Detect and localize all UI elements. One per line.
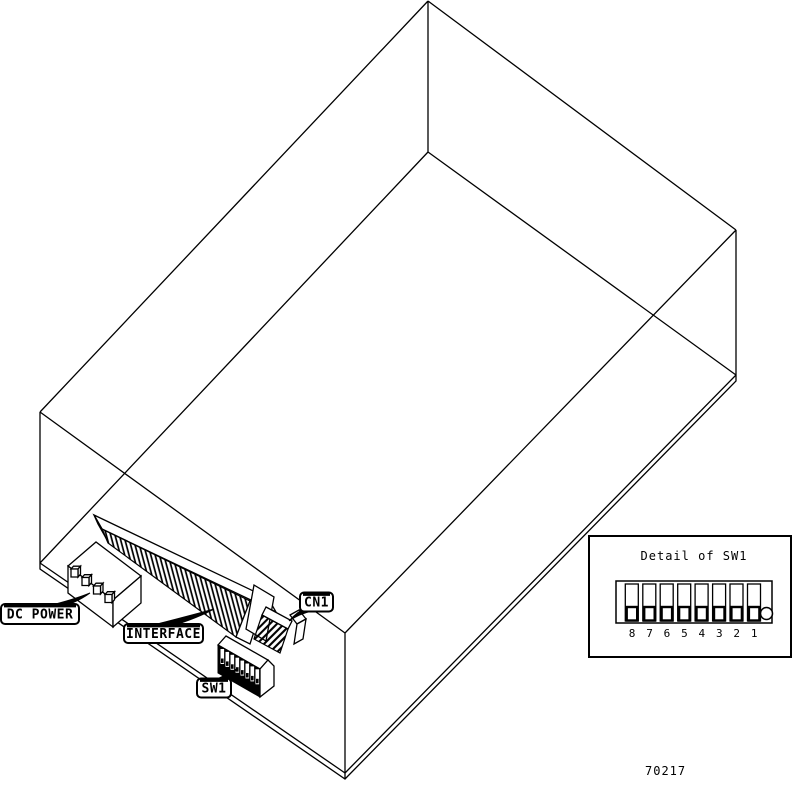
num-1: 1 (751, 627, 758, 640)
handle-2 (731, 607, 742, 621)
handle-5 (679, 607, 690, 621)
handle-4 (697, 607, 708, 621)
background (0, 0, 794, 787)
dc-power-pin-3 (94, 583, 104, 594)
dc-power-pin-4 (105, 592, 115, 603)
handle-6 (662, 607, 673, 621)
num-4: 4 (698, 627, 705, 640)
cn1-label: CN1 (304, 596, 329, 611)
handle-1 (749, 607, 760, 621)
handle-8 (627, 607, 638, 621)
dc-power-pin-2 (82, 575, 92, 586)
num-3: 3 (716, 627, 723, 640)
drive-enclosure-figure: DC POWER INTERFACE CN1 SW1 Detail of SW1 (0, 0, 794, 787)
num-5: 5 (681, 627, 688, 640)
interface-label: INTERFACE (126, 627, 201, 642)
sw1-label: SW1 (202, 682, 227, 697)
dc-power-pin-1 (71, 566, 81, 577)
diagram-page: DC POWER INTERFACE CN1 SW1 Detail of SW1 (0, 0, 794, 787)
num-6: 6 (664, 627, 671, 640)
num-7: 7 (646, 627, 653, 640)
inset-title: Detail of SW1 (641, 549, 748, 563)
sw1-detail-inset: Detail of SW1 8 7 6 5 4 (589, 536, 791, 657)
inset-index-dot (761, 608, 773, 620)
handle-3 (714, 607, 725, 621)
figure-number: 70217 (645, 764, 686, 778)
dc-power-label: DC POWER (7, 608, 74, 623)
num-8: 8 (629, 627, 636, 640)
num-2: 2 (733, 627, 740, 640)
handle-7 (644, 607, 655, 621)
